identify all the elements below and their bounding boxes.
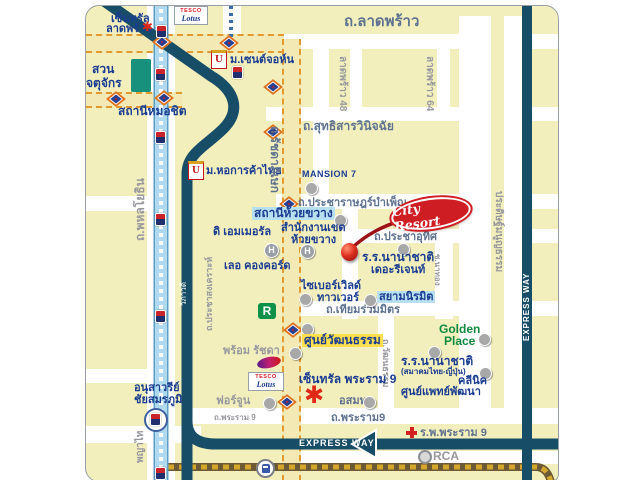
university-icon [188,161,204,180]
clinic-label2: ศูนย์แพทย์พัฒนา [401,386,481,398]
bts-station-icon [155,467,166,480]
place-marker [289,347,302,360]
prachasongkhro-road-label: ถ.ประชาสงเคราะห์ [205,257,215,331]
rama9-hospital-label: ร.พ.พระราม 9 [420,427,487,439]
place-marker [299,293,312,306]
district-office-label2: ห้วยขวาง [291,234,336,246]
stjohn-label: ม.เซนต์จอห์น [230,54,294,66]
ladprao48-soi-label: ลาดพร้าว 48 [337,56,348,111]
victory-monument-label2: ชัยสมรภูมิ [134,394,182,406]
chatuchak-label: สวน [92,63,114,76]
pradit-road-label: ประดิษฐ์มนูญธรรม [493,191,504,272]
mansion7-label: MANSION 7 [302,170,357,180]
ratchada-road-label: ถ.รัชดาภิเษก [268,126,281,193]
regent-school-label: ร.ร.นานาชาติ [362,251,434,264]
bts-station-icon [155,213,166,226]
phayathai-label: พญาไท [135,431,146,463]
mochit-station-label: สถานีหมอชิต [118,105,187,118]
bts-station-icon [232,66,243,79]
ladprao64-soi-label: ลาดพร้าว 64 [424,56,435,111]
city-resort-location-map: เซ็นทรัล ลาดพร้าว ✱ TESCOLotus สวน จตุจั… [85,5,559,480]
phahonyothin-road-label: ถ.พหลโยธิน [134,178,147,241]
bts-station-icon [155,68,166,81]
emerald-hotel-label: ดิ เอมเมอรัล [213,226,271,238]
concorde-hotel-label: เลอ คองคอร์ด [224,260,291,272]
hotel-icon [264,243,279,258]
rama9-road-label-west: ถ.พระราม 9 [214,414,256,423]
central-star-icon: ✱ [304,384,324,408]
huaikhwang-station-label: สถานีห้วยขวาง [252,207,335,220]
train-station-icon [256,459,275,478]
sutthisan-road-label: ถ.สุทธิสารวินิจฉัย [303,120,394,133]
victory-monument-label: อนุสาวรีย์ [134,382,180,394]
expressway-label: EXPRESS WAY [299,439,375,449]
junction-icon [263,79,283,95]
bts-station-icon [156,25,167,38]
prompt-ratchada-label: พร้อม รัชดา [223,345,280,357]
road-ladprao-west-mrt [86,34,284,53]
district-office-label: สำนักงานเขต [281,222,346,234]
place-marker [364,294,377,307]
rca-label: RCA [433,450,459,463]
thiamruammit-road-label: ถ.เทียมร่วมมิตร [326,304,400,316]
place-marker [478,333,491,346]
road-soi-ladprao48 [350,45,362,114]
rama9-road-label: ถ.พระราม9 [331,412,385,424]
university-icon [211,50,227,69]
city-resort-location-marker [341,243,358,261]
regent-school-label2: เดอะรีเจนท์ [371,264,425,276]
tj-school-label2: (สมาคมไทย-ญี่ปุ่น) [401,368,466,377]
hospital-cross-icon [406,427,417,438]
tesco-lotus-logo: TESCOLotus [248,372,284,391]
place-marker-ring [418,450,432,464]
road-west-2 [86,369,148,383]
railway-line [168,467,551,480]
cyberworld-label2: ทาวเวอร์ [317,292,359,304]
bts-station-icon [155,310,166,323]
road-soi-ladprao64 [437,41,450,112]
chatuchak-park-area [131,59,151,92]
central-star-icon: ✱ [142,20,153,33]
place-marker [363,396,376,409]
siam-niramit-label: สยามนิรมิต [377,291,435,303]
cyberworld-label: ไซเบอร์เวิลด์ [301,280,361,292]
vibhavadi-road-label: วิภาวดี [180,282,189,306]
expressway-vertical-label: EXPRESS WAY [523,272,532,341]
chatuchak-label2: จตุจักร [86,77,122,90]
prachauthit-road-label: ถ.ประชาอุทิศ [374,231,437,243]
golden-place-label2: Place [444,335,475,348]
victory-monument-station-icon [144,408,168,432]
ladprao-road-label: ถ.ลาดพร้าว [344,14,419,31]
map-screenshot: เซ็นทรัล ลาดพร้าว ✱ TESCOLotus สวน จตุจั… [0,0,640,480]
robinson-logo [258,303,276,319]
hotel-icon [300,244,315,259]
tesco-lotus-logo: TESCOLotus [174,6,208,25]
place-marker [305,182,318,195]
bts-station-icon [155,131,166,144]
fortune-label: ฟอร์จูน [216,395,250,407]
culture-centre-label: ศูนย์วัฒนธรรม [302,334,383,347]
place-marker [263,397,276,410]
